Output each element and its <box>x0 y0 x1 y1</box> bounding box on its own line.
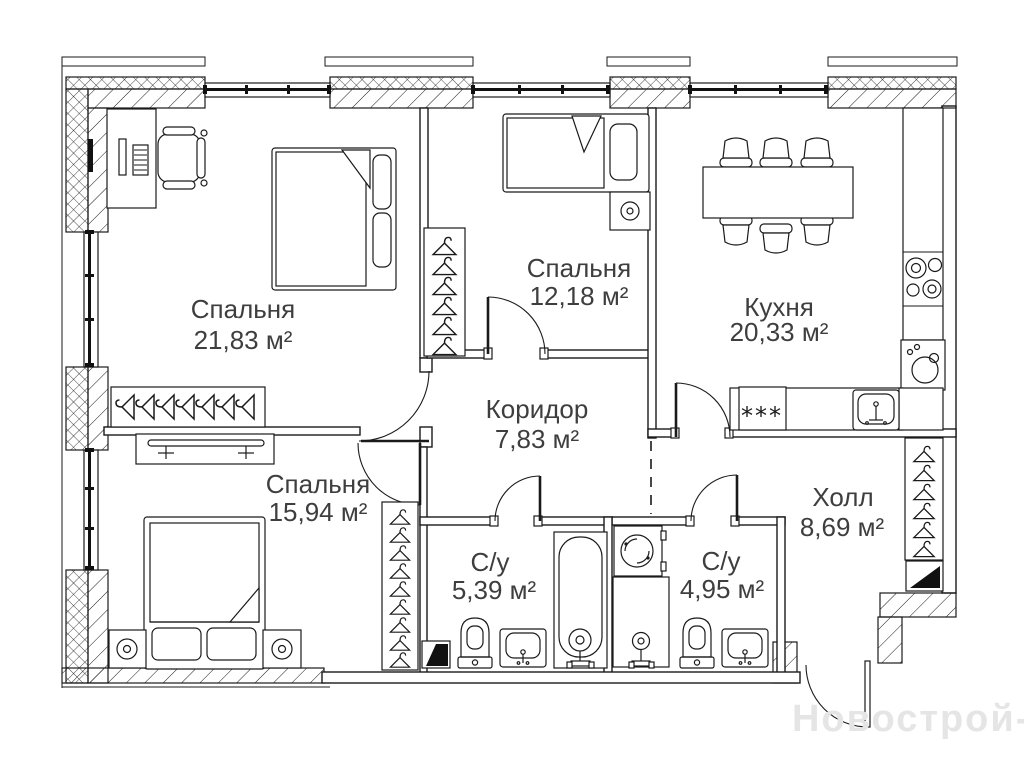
wardrobe-bedroom2 <box>424 228 465 356</box>
bathroom2-name: С/у <box>702 546 741 576</box>
bedroom1-area: 21,83 м² <box>194 325 293 355</box>
hall-furniture <box>905 438 943 591</box>
door-bedroom1 <box>359 371 429 441</box>
keyboard-icon <box>133 145 148 175</box>
bedroom2-area: 12,18 м² <box>530 281 629 311</box>
window-kitchen-top <box>688 83 828 97</box>
sink-icon <box>722 629 768 667</box>
hall-name: Холл <box>812 482 873 512</box>
door-bathroom1 <box>495 476 540 521</box>
sink-icon <box>500 629 546 667</box>
window-bedroom1-left <box>84 230 98 367</box>
door-bathroom2 <box>691 475 737 521</box>
vent-shaft <box>422 641 450 668</box>
nightstand-left <box>109 630 146 668</box>
double-bed <box>144 517 265 669</box>
shower-icon <box>613 577 669 668</box>
single-bed <box>503 114 649 192</box>
tv-console <box>136 434 274 464</box>
bedroom2-furniture <box>424 114 650 356</box>
bathroom1-name: С/у <box>471 547 510 577</box>
corridor-name: Коридор <box>486 394 589 424</box>
hall-vent-shaft <box>906 561 943 591</box>
kitchen-sink-icon <box>853 390 899 430</box>
bedroom3-furniture <box>109 434 418 670</box>
floor-plan: *** <box>0 0 1024 768</box>
door-kitchen <box>676 383 730 437</box>
wardrobe-bedroom1 <box>111 387 265 427</box>
fridge: *** <box>739 387 786 430</box>
kitchen-counter-right <box>901 108 945 390</box>
fridge-marks: *** <box>741 402 783 430</box>
wardrobe-bedroom3 <box>382 502 418 670</box>
wall-bedroom2-corridor-right <box>545 350 653 358</box>
toilet-icon <box>458 618 492 668</box>
nightstand-right <box>263 630 301 668</box>
bedroom1-name: Спальня <box>191 294 295 324</box>
kitchen-area: 20,33 м² <box>730 317 829 347</box>
wall-bathroom2-hall <box>777 517 785 673</box>
hall-closet <box>905 438 943 560</box>
double-bed <box>272 148 396 290</box>
nightstand <box>610 192 650 230</box>
washing-machine-icon <box>614 526 666 576</box>
window-bedroom2-top <box>471 83 610 97</box>
bathroom2-area: 4,95 м² <box>680 574 765 604</box>
bedroom1-furniture <box>88 109 396 427</box>
watermark: Новострой-М <box>792 698 1024 740</box>
dining-table <box>703 138 853 253</box>
kitchen-furniture: *** <box>703 108 945 430</box>
corridor-area: 7,83 м² <box>495 424 580 454</box>
corner-sink-icon <box>901 340 945 390</box>
wall-duct <box>88 139 93 172</box>
floor-plan-page: *** <box>0 0 1024 768</box>
toilet-icon <box>680 618 714 668</box>
office-chair <box>158 127 207 189</box>
window-bedroom3-left <box>84 448 98 570</box>
window-bedroom1-top <box>203 83 331 97</box>
wall-bath-bottom <box>322 672 800 683</box>
bedroom2-name: Спальня <box>527 253 631 283</box>
hall-area: 8,69 м² <box>800 512 885 542</box>
bathtub-icon <box>554 532 607 668</box>
bedroom3-name: Спальня <box>266 469 370 499</box>
bedroom3-area: 15,94 м² <box>269 497 368 527</box>
kitchen-counter-bottom: *** <box>730 387 943 430</box>
bathroom1-area: 5,39 м² <box>452 575 537 605</box>
monitor-icon <box>119 139 126 175</box>
